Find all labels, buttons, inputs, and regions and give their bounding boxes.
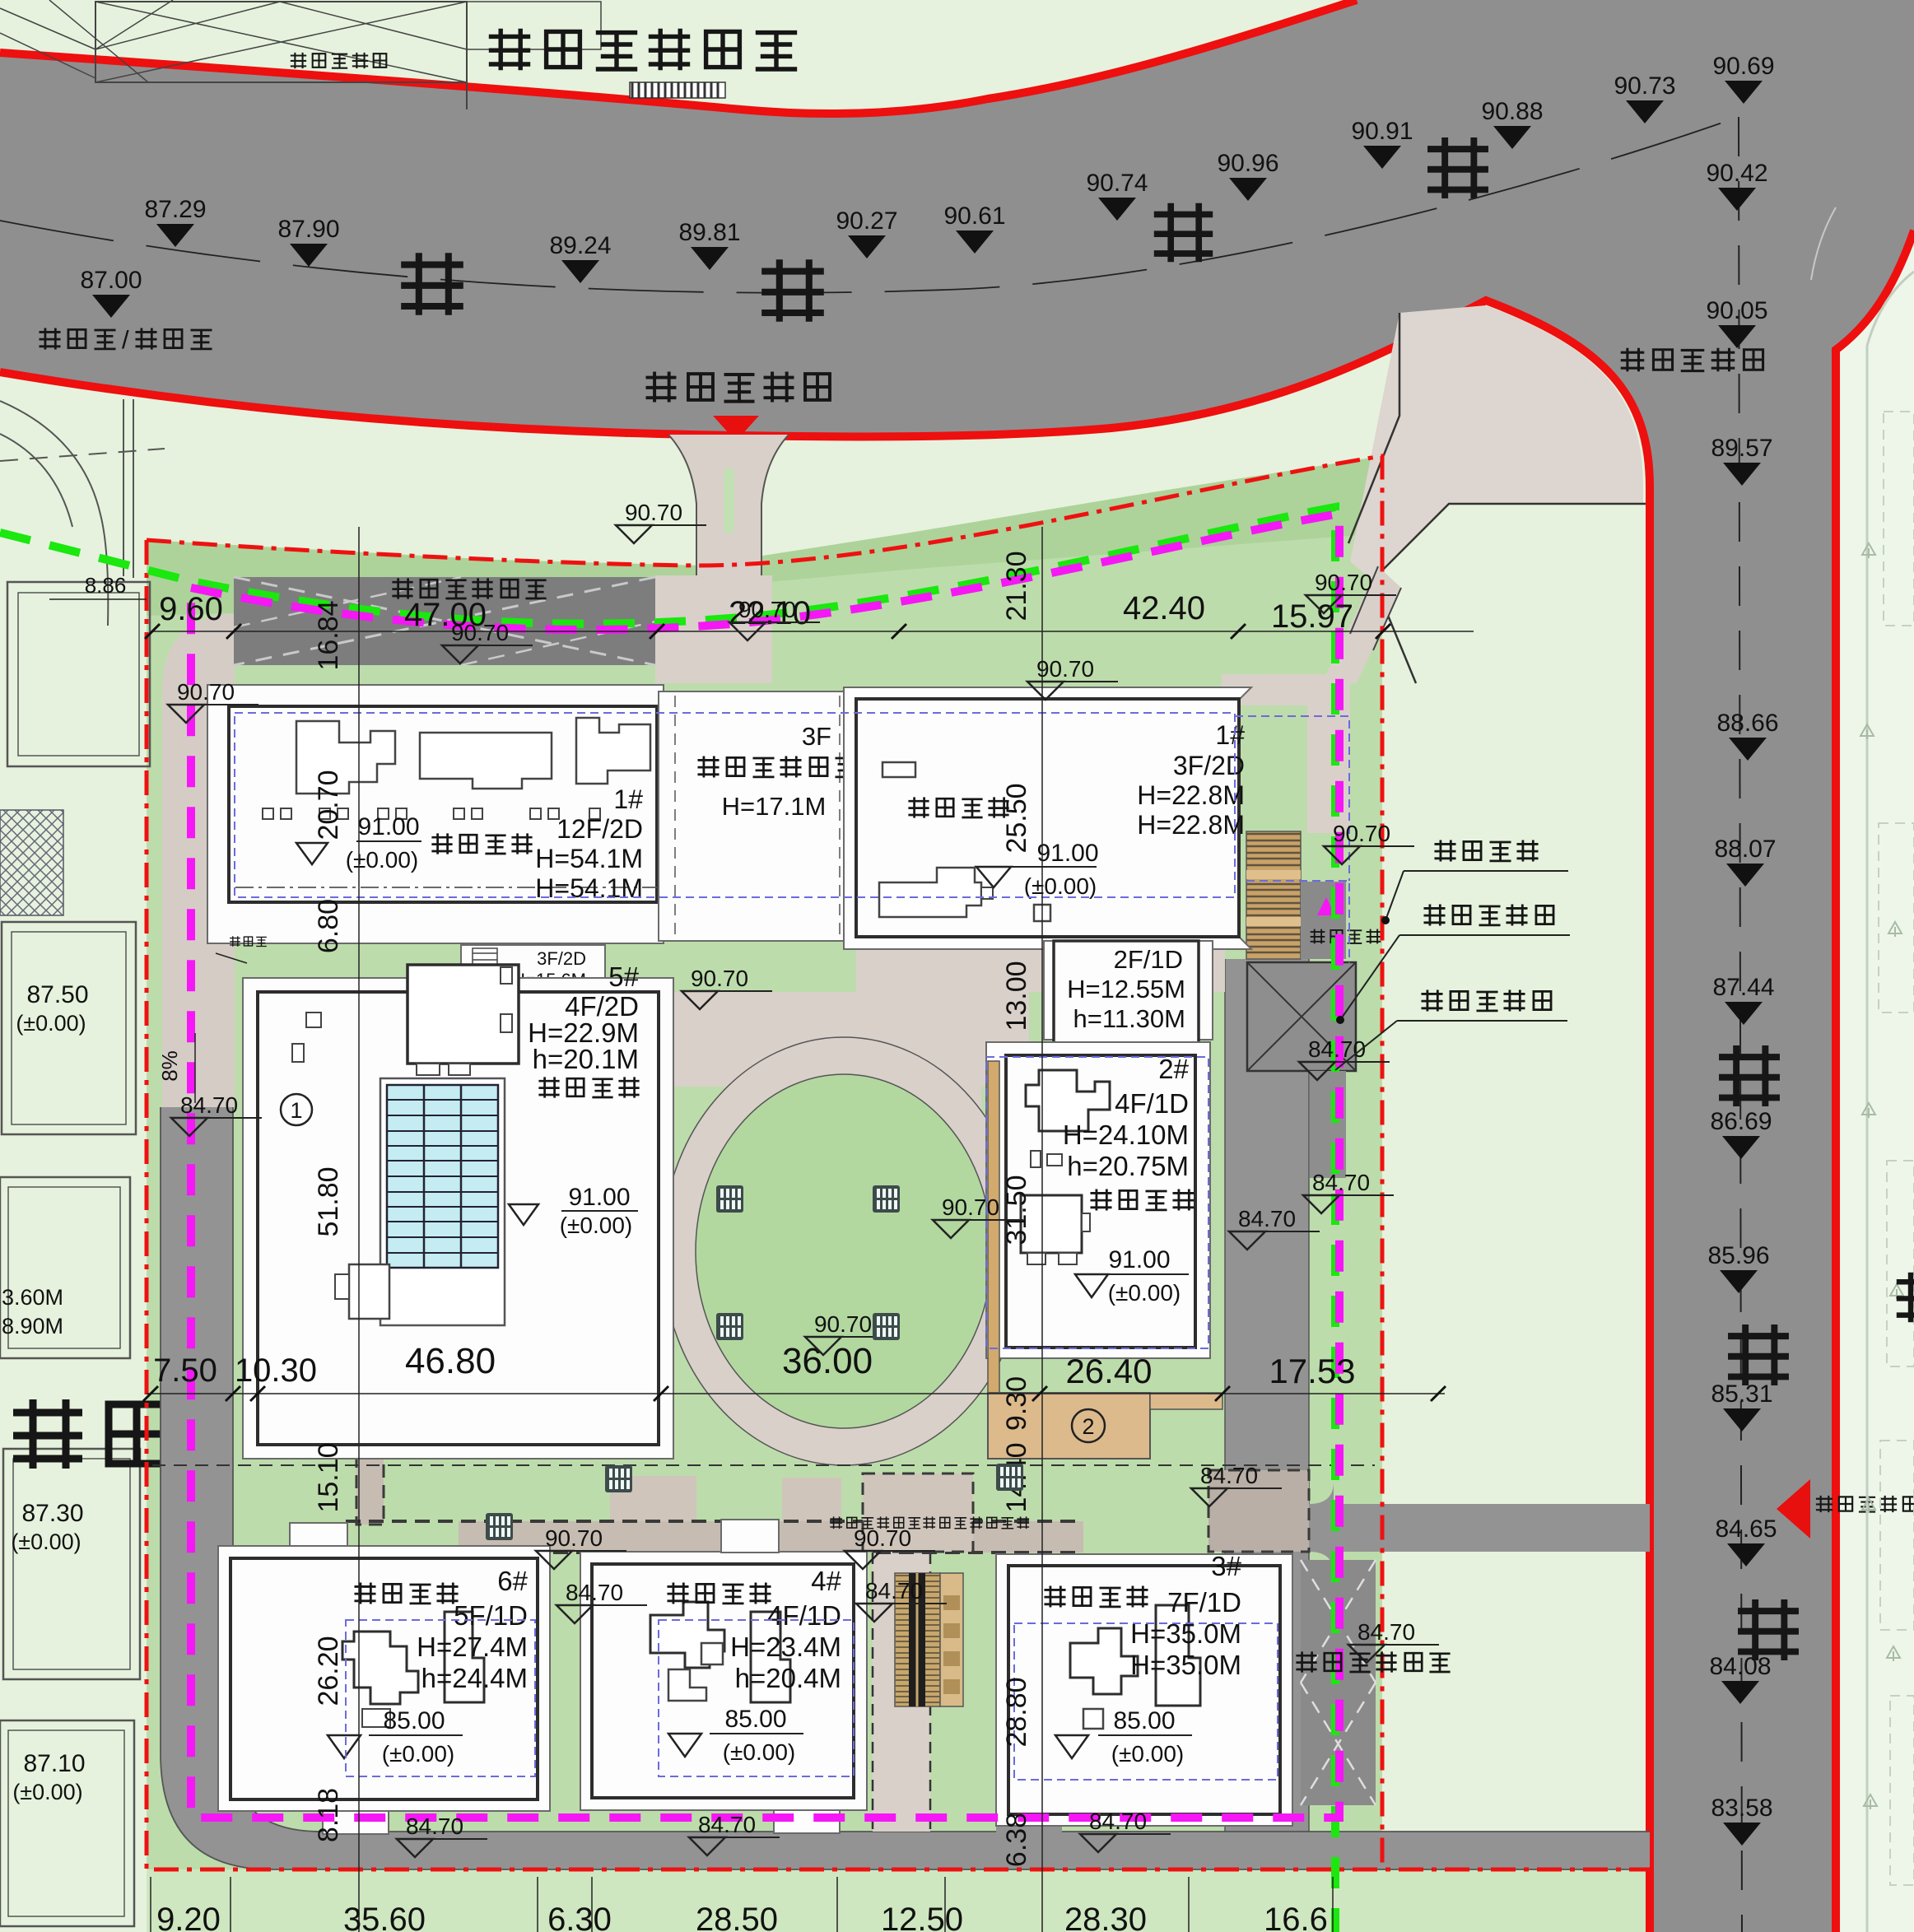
svg-text:6#: 6# bbox=[497, 1566, 528, 1596]
svg-text:(±0.00): (±0.00) bbox=[16, 1011, 86, 1036]
svg-text:4F/1D: 4F/1D bbox=[767, 1600, 841, 1631]
svg-text:84.65: 84.65 bbox=[1715, 1515, 1777, 1543]
svg-text:90.70: 90.70 bbox=[451, 620, 509, 645]
svg-text:15.10: 15.10 bbox=[313, 1442, 344, 1512]
svg-text:9.20: 9.20 bbox=[156, 1902, 221, 1932]
svg-text:85.00: 85.00 bbox=[724, 1706, 786, 1733]
svg-text:8.86: 8.86 bbox=[85, 573, 127, 598]
svg-text:90.69: 90.69 bbox=[1712, 53, 1774, 80]
svg-text:3F: 3F bbox=[802, 722, 831, 751]
svg-text:90.05: 90.05 bbox=[1706, 297, 1767, 324]
svg-text:3F/2D: 3F/2D bbox=[537, 948, 586, 969]
svg-text:90.27: 90.27 bbox=[836, 207, 897, 235]
svg-text:91.00: 91.00 bbox=[1108, 1246, 1170, 1273]
svg-text:16.84: 16.84 bbox=[313, 600, 344, 670]
svg-text:90.70: 90.70 bbox=[1315, 570, 1372, 595]
svg-text:H=24.10M: H=24.10M bbox=[1063, 1120, 1189, 1150]
svg-text:7F/1D: 7F/1D bbox=[1167, 1587, 1241, 1618]
svg-text:84.70: 84.70 bbox=[1089, 1809, 1147, 1834]
svg-text:91.00: 91.00 bbox=[1036, 840, 1098, 867]
svg-text:84.70: 84.70 bbox=[1238, 1206, 1296, 1231]
svg-text:13.00: 13.00 bbox=[1001, 961, 1032, 1031]
svg-text:85.00: 85.00 bbox=[383, 1707, 445, 1734]
svg-text:1#: 1# bbox=[613, 784, 643, 814]
svg-text:90.91: 90.91 bbox=[1351, 118, 1413, 145]
svg-text:12F/2D: 12F/2D bbox=[557, 814, 643, 844]
svg-text:8.18: 8.18 bbox=[313, 1788, 344, 1842]
svg-text:51.80: 51.80 bbox=[313, 1166, 344, 1236]
svg-text:H=23.4M: H=23.4M bbox=[730, 1632, 841, 1662]
svg-text:42.40: 42.40 bbox=[1123, 590, 1205, 626]
svg-text:90.70: 90.70 bbox=[854, 1525, 911, 1551]
svg-text:(±0.00): (±0.00) bbox=[1108, 1280, 1181, 1306]
svg-text:5F/1D: 5F/1D bbox=[454, 1600, 528, 1631]
svg-text:(±0.00): (±0.00) bbox=[1111, 1741, 1185, 1767]
svg-text:H=17.1M: H=17.1M bbox=[722, 792, 827, 821]
svg-text:90.70: 90.70 bbox=[691, 966, 748, 991]
svg-text:1: 1 bbox=[290, 1098, 302, 1123]
svg-text:10.30: 10.30 bbox=[235, 1352, 317, 1389]
svg-text:90.70: 90.70 bbox=[738, 597, 796, 622]
svg-text:h=24.4M: h=24.4M bbox=[421, 1663, 528, 1693]
svg-text:8.90M: 8.90M bbox=[2, 1314, 63, 1338]
svg-text:28.50: 28.50 bbox=[696, 1902, 778, 1932]
svg-text:h=11.30M: h=11.30M bbox=[1073, 1004, 1185, 1033]
svg-text:2#: 2# bbox=[1158, 1054, 1189, 1084]
svg-text:H=27.4M: H=27.4M bbox=[417, 1632, 528, 1662]
svg-text:88.66: 88.66 bbox=[1716, 710, 1778, 737]
svg-text:3.60M: 3.60M bbox=[2, 1285, 63, 1310]
svg-text:87.90: 87.90 bbox=[277, 216, 339, 243]
svg-text:(±0.00): (±0.00) bbox=[382, 1741, 455, 1767]
svg-text:87.30: 87.30 bbox=[21, 1500, 83, 1527]
svg-text:25.50: 25.50 bbox=[1001, 783, 1032, 853]
svg-text:91.00: 91.00 bbox=[357, 813, 419, 840]
svg-text:84.70: 84.70 bbox=[1308, 1036, 1366, 1062]
svg-text:20.70: 20.70 bbox=[313, 770, 344, 840]
svg-text:(±0.00): (±0.00) bbox=[346, 847, 419, 873]
svg-text:84.70: 84.70 bbox=[406, 1813, 463, 1839]
svg-text:7.50: 7.50 bbox=[153, 1352, 217, 1389]
svg-text:5#: 5# bbox=[608, 961, 639, 992]
svg-text:84.70: 84.70 bbox=[865, 1578, 923, 1604]
svg-text:89.57: 89.57 bbox=[1711, 435, 1772, 462]
svg-text:H=54.1M: H=54.1M bbox=[535, 844, 643, 873]
svg-text:84.70: 84.70 bbox=[1312, 1170, 1370, 1195]
svg-text:87.29: 87.29 bbox=[144, 196, 206, 223]
svg-text:90.70: 90.70 bbox=[942, 1194, 999, 1220]
svg-text:3F/2D: 3F/2D bbox=[1173, 751, 1245, 780]
svg-text:84.70: 84.70 bbox=[1357, 1619, 1415, 1645]
svg-text:86.69: 86.69 bbox=[1710, 1108, 1772, 1135]
svg-text:15.97: 15.97 bbox=[1271, 598, 1353, 635]
svg-text:1#: 1# bbox=[1215, 720, 1245, 750]
svg-text:21.30: 21.30 bbox=[1001, 551, 1032, 621]
svg-text:90.96: 90.96 bbox=[1217, 150, 1278, 177]
svg-text:90.70: 90.70 bbox=[1036, 656, 1094, 682]
svg-text:90.88: 90.88 bbox=[1481, 98, 1543, 125]
svg-text:84.70: 84.70 bbox=[698, 1812, 756, 1837]
svg-text:85.96: 85.96 bbox=[1707, 1242, 1769, 1269]
svg-text:35.60: 35.60 bbox=[343, 1902, 426, 1932]
svg-text:90.70: 90.70 bbox=[1333, 821, 1390, 846]
svg-text:4#: 4# bbox=[811, 1566, 841, 1596]
svg-text:26.40: 26.40 bbox=[1065, 1352, 1152, 1390]
svg-text:6.38: 6.38 bbox=[1001, 1813, 1032, 1867]
svg-text:90.70: 90.70 bbox=[545, 1525, 603, 1551]
svg-text:H=12.55M: H=12.55M bbox=[1067, 975, 1185, 1003]
svg-text:h=20.75M: h=20.75M bbox=[1067, 1151, 1189, 1181]
svg-text:H=54.1M: H=54.1M bbox=[535, 873, 643, 903]
svg-text:9.30: 9.30 bbox=[1001, 1376, 1032, 1431]
svg-text:89.81: 89.81 bbox=[678, 219, 740, 246]
svg-text:(±0.00): (±0.00) bbox=[723, 1739, 796, 1765]
svg-text:87.00: 87.00 bbox=[80, 267, 142, 294]
svg-text:26.20: 26.20 bbox=[313, 1636, 344, 1706]
svg-text:36.00: 36.00 bbox=[782, 1341, 873, 1381]
svg-text:H=35.0M: H=35.0M bbox=[1130, 1650, 1241, 1680]
svg-text:(±0.00): (±0.00) bbox=[560, 1213, 633, 1238]
svg-text:6.80: 6.80 bbox=[313, 899, 344, 953]
svg-text:9.60: 9.60 bbox=[159, 591, 223, 627]
svg-text:85.31: 85.31 bbox=[1711, 1380, 1772, 1408]
svg-text:91.00: 91.00 bbox=[568, 1184, 630, 1211]
svg-text:H=22.8M: H=22.8M bbox=[1137, 810, 1245, 840]
svg-text:89.24: 89.24 bbox=[549, 232, 611, 259]
svg-text:(±0.00): (±0.00) bbox=[12, 1780, 82, 1804]
svg-text:84.70: 84.70 bbox=[180, 1092, 238, 1118]
svg-text:46.80: 46.80 bbox=[405, 1341, 496, 1381]
svg-text:28.30: 28.30 bbox=[1064, 1902, 1147, 1932]
svg-text:90.70: 90.70 bbox=[814, 1311, 872, 1337]
svg-text:90.70: 90.70 bbox=[177, 679, 235, 705]
svg-text:h=20.1M: h=20.1M bbox=[533, 1044, 639, 1074]
svg-text:90.61: 90.61 bbox=[943, 203, 1005, 230]
svg-text:16.6: 16.6 bbox=[1264, 1902, 1328, 1932]
svg-text:(±0.00): (±0.00) bbox=[1024, 873, 1097, 899]
svg-text:12.50: 12.50 bbox=[881, 1902, 963, 1932]
svg-text:3#: 3# bbox=[1211, 1551, 1241, 1581]
svg-text:/: / bbox=[122, 325, 129, 354]
svg-text:84.08: 84.08 bbox=[1709, 1653, 1771, 1680]
svg-text:31.50: 31.50 bbox=[1001, 1175, 1032, 1245]
svg-text:(±0.00): (±0.00) bbox=[11, 1529, 81, 1554]
svg-text:2: 2 bbox=[1082, 1414, 1094, 1439]
svg-text:90.42: 90.42 bbox=[1706, 160, 1767, 187]
svg-text:6.30: 6.30 bbox=[547, 1902, 612, 1932]
svg-text:87.44: 87.44 bbox=[1712, 974, 1774, 1001]
svg-text:17.53: 17.53 bbox=[1269, 1352, 1355, 1390]
svg-text:85.00: 85.00 bbox=[1113, 1707, 1175, 1734]
svg-text:90.70: 90.70 bbox=[625, 500, 682, 525]
svg-text:87.10: 87.10 bbox=[23, 1750, 85, 1777]
svg-text:4F/1D: 4F/1D bbox=[1115, 1088, 1189, 1119]
svg-text:90.73: 90.73 bbox=[1614, 72, 1675, 100]
svg-text:h=20.4M: h=20.4M bbox=[735, 1663, 841, 1693]
svg-text:83.58: 83.58 bbox=[1711, 1795, 1772, 1822]
svg-text:84.70: 84.70 bbox=[1200, 1463, 1258, 1488]
svg-text:88.07: 88.07 bbox=[1714, 836, 1776, 863]
svg-text:H=22.8M: H=22.8M bbox=[1137, 780, 1245, 810]
svg-text:2F/1D: 2F/1D bbox=[1114, 945, 1183, 974]
svg-text:8%: 8% bbox=[157, 1050, 182, 1082]
svg-text:87.50: 87.50 bbox=[26, 981, 88, 1008]
svg-text:90.74: 90.74 bbox=[1086, 170, 1148, 197]
svg-text:28.80: 28.80 bbox=[1001, 1677, 1032, 1747]
svg-text:84.70: 84.70 bbox=[566, 1580, 623, 1605]
